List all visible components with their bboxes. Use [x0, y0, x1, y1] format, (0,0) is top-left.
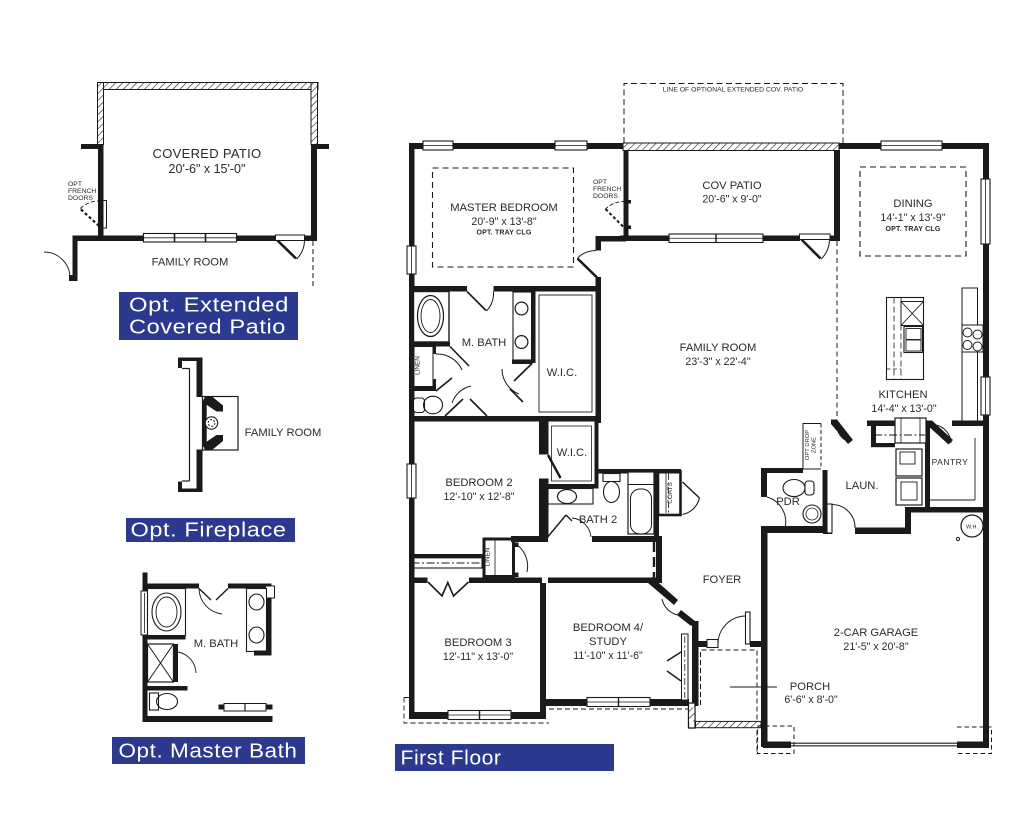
svg-text:PANTRY: PANTRY — [932, 457, 969, 467]
svg-text:OPT: OPT — [68, 181, 82, 188]
svg-text:FAMILY ROOM: FAMILY ROOM — [152, 257, 229, 269]
svg-text:FRENCH: FRENCH — [593, 186, 621, 193]
svg-text:ZONE: ZONE — [812, 437, 818, 453]
svg-text:FAMILY ROOM: FAMILY ROOM — [245, 427, 322, 439]
svg-text:PDR: PDR — [776, 496, 800, 508]
svg-text:LINE OF OPTIONAL EXTENDED COV.: LINE OF OPTIONAL EXTENDED COV. PATIO — [663, 87, 804, 94]
svg-text:LAUN.: LAUN. — [846, 480, 879, 492]
svg-text:M. BATH: M. BATH — [462, 337, 507, 349]
svg-text:W.I.C.: W.I.C. — [547, 367, 577, 379]
svg-text:FRENCH: FRENCH — [68, 188, 96, 195]
svg-text:21'-5" x 20'-8": 21'-5" x 20'-8" — [843, 641, 908, 653]
svg-text:FOYER: FOYER — [703, 574, 742, 586]
svg-text:LINEN: LINEN — [485, 547, 492, 566]
svg-text:STUDY: STUDY — [589, 636, 627, 648]
svg-text:6'-6" x 8'-0": 6'-6" x 8'-0" — [784, 694, 838, 706]
svg-text:BEDROOM 3: BEDROOM 3 — [444, 637, 511, 649]
svg-text:KITCHEN: KITCHEN — [878, 389, 927, 401]
svg-text:Covered Patio: Covered Patio — [129, 317, 286, 339]
svg-text:OPT. TRAY CLG: OPT. TRAY CLG — [476, 230, 531, 237]
svg-text:12'-10" x 12'-8": 12'-10" x 12'-8" — [443, 491, 514, 503]
svg-text:Opt. Fireplace: Opt. Fireplace — [131, 520, 287, 542]
svg-text:MASTER BEDROOM: MASTER BEDROOM — [450, 202, 558, 214]
svg-text:Opt. Master Bath: Opt. Master Bath — [119, 741, 298, 763]
svg-text:14'-4" x 13'-0": 14'-4" x 13'-0" — [871, 403, 936, 415]
svg-text:First Floor: First Floor — [401, 748, 502, 770]
svg-text:OPT DROP: OPT DROP — [805, 430, 811, 460]
svg-text:LINEN: LINEN — [415, 356, 422, 375]
svg-text:PORCH: PORCH — [790, 681, 830, 693]
svg-text:20'-6" x 15'-0": 20'-6" x 15'-0" — [169, 162, 246, 176]
svg-text:2-CAR GARAGE: 2-CAR GARAGE — [834, 627, 919, 639]
svg-text:12'-11" x 13'-0": 12'-11" x 13'-0" — [443, 651, 514, 663]
svg-text:BEDROOM 4/: BEDROOM 4/ — [573, 622, 644, 634]
svg-text:W.H.: W.H. — [966, 525, 978, 531]
svg-text:DOORS: DOORS — [593, 193, 618, 200]
svg-text:20'-6" x 9'-0": 20'-6" x 9'-0" — [702, 194, 762, 206]
svg-text:Opt. Extended: Opt. Extended — [129, 295, 289, 317]
svg-text:OPT: OPT — [593, 179, 607, 186]
svg-text:20'-9" x 13'-8": 20'-9" x 13'-8" — [471, 216, 536, 228]
svg-text:M. BATH: M. BATH — [194, 638, 239, 650]
svg-text:OPT. TRAY CLG: OPT. TRAY CLG — [885, 226, 940, 233]
svg-text:BEDROOM 2: BEDROOM 2 — [445, 477, 512, 489]
svg-text:DINING: DINING — [893, 198, 932, 210]
svg-text:W.I.C.: W.I.C. — [557, 447, 587, 459]
svg-text:FAMILY ROOM: FAMILY ROOM — [680, 342, 757, 354]
svg-text:11'-10" x 11'-6": 11'-10" x 11'-6" — [573, 650, 643, 662]
svg-text:COATS: COATS — [667, 482, 674, 504]
svg-text:14'-1" x 13'-9": 14'-1" x 13'-9" — [880, 212, 945, 224]
svg-text:COVERED PATIO: COVERED PATIO — [153, 146, 262, 161]
svg-text:23'-3" x 22'-4": 23'-3" x 22'-4" — [685, 356, 750, 368]
svg-text:DOORS: DOORS — [68, 195, 93, 202]
svg-text:COV PATIO: COV PATIO — [702, 180, 762, 192]
